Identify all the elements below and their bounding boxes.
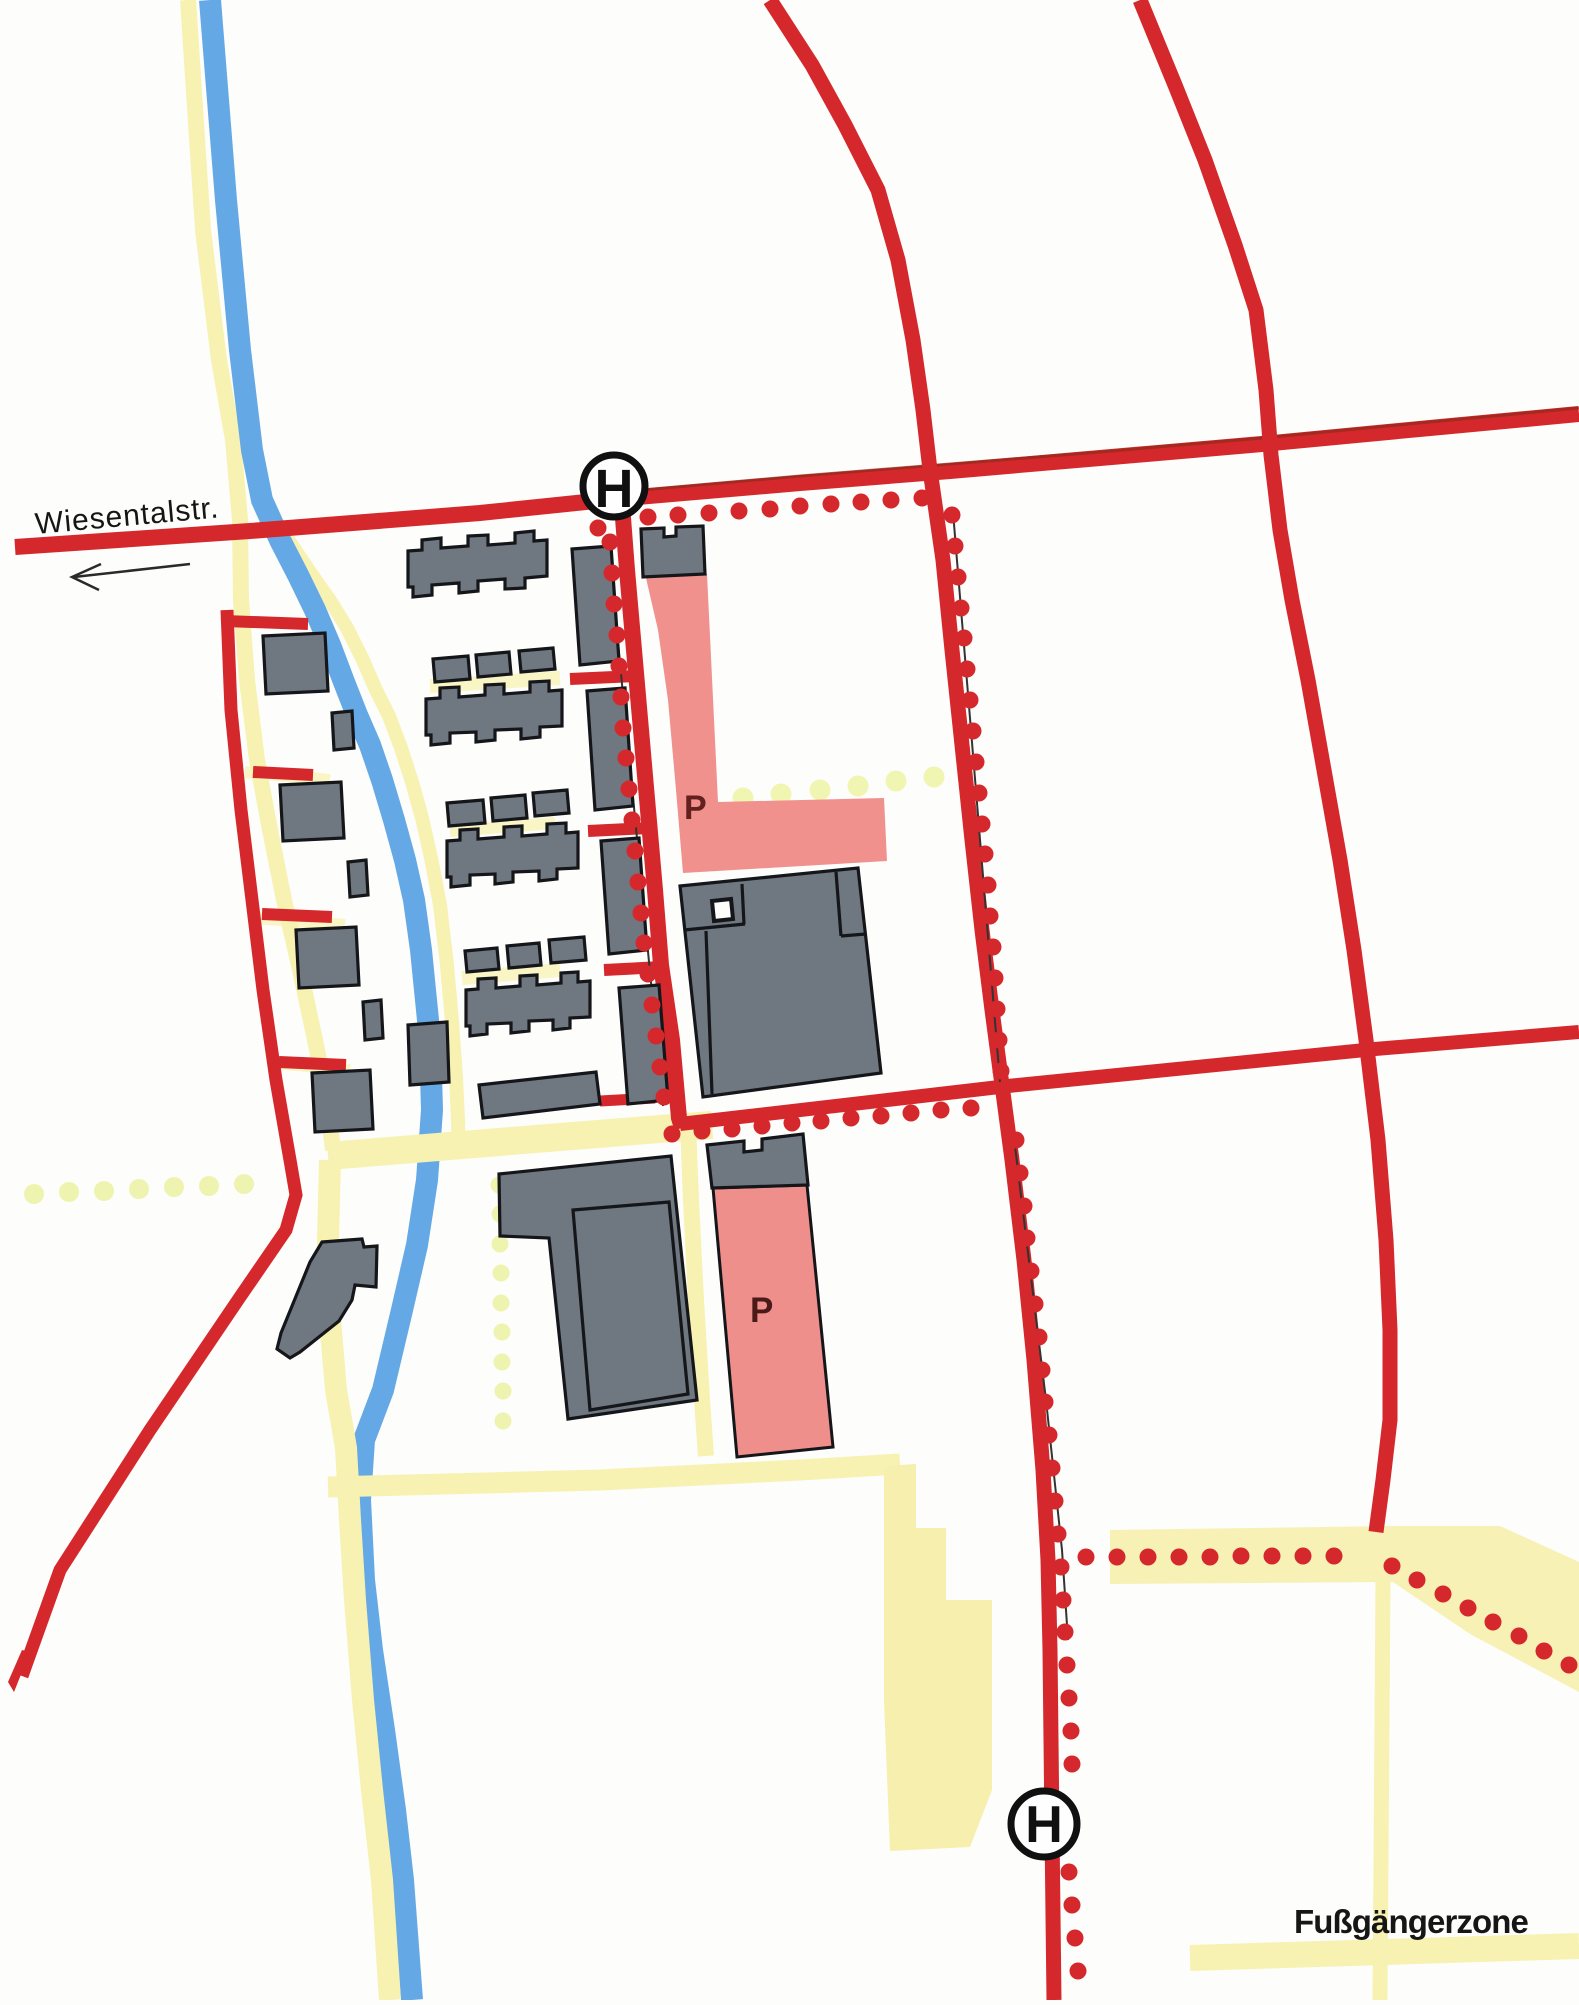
svg-text:H: H (595, 459, 634, 519)
svg-text:Fußgängerzone: Fußgängerzone (1294, 1903, 1529, 1940)
svg-text:P: P (684, 789, 707, 827)
svg-text:H: H (1025, 1796, 1063, 1854)
svg-text:P: P (750, 1291, 773, 1330)
